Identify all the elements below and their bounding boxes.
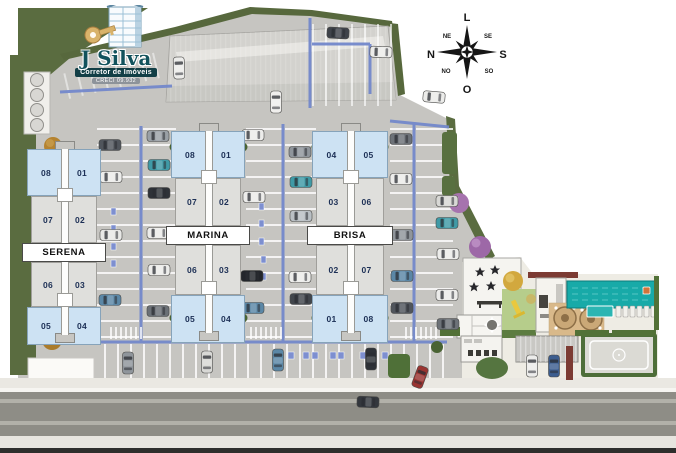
stair-core: [343, 281, 359, 295]
car-icon: [527, 355, 538, 377]
utility-tanks: [24, 72, 50, 134]
compass-label-east: L: [464, 12, 471, 24]
car-icon: [437, 319, 459, 330]
unit-number: 05: [172, 314, 208, 324]
stair-core: [343, 170, 359, 184]
car-icon: [123, 352, 134, 374]
stair-core: [57, 188, 73, 202]
unit-number: 04: [208, 314, 244, 324]
car-icon: [357, 396, 379, 408]
car-icon: [436, 196, 458, 207]
building-brisa: 04 05 03 06 BRISA 02 07 01 08: [316, 131, 384, 333]
car-icon: [147, 131, 169, 142]
car-icon: [273, 349, 284, 371]
car-icon: [148, 160, 170, 171]
unit-number: 06: [32, 280, 64, 290]
car-icon: [99, 140, 121, 151]
stair-core: [201, 170, 217, 184]
car-icon: [436, 218, 458, 229]
brand-name: J Silva: [56, 49, 176, 68]
compass-label-south: S: [499, 49, 506, 61]
stair-core: [201, 281, 217, 295]
car-icon: [390, 134, 412, 145]
unit-number: 03: [208, 265, 240, 275]
car-icon: [243, 192, 265, 203]
car-icon: [100, 172, 122, 183]
unit-number: 08: [350, 314, 387, 324]
unit-number: 08: [28, 168, 64, 178]
unit-number: 03: [64, 280, 96, 290]
compass-label-west: O: [463, 84, 472, 96]
car-icon: [148, 188, 170, 199]
site-plan-page: L S O N NE SE NO SO 08 01 07 02 SERENA 0…: [0, 0, 676, 453]
car-icon: [366, 348, 377, 370]
car-icon: [290, 211, 312, 222]
car-icon: [99, 295, 121, 306]
compass-label-north: N: [427, 49, 435, 61]
car-icon: [242, 303, 264, 314]
car-icon: [423, 91, 446, 104]
brand-tagline: Corretor de Imóveis: [75, 68, 157, 77]
unit-number: 04: [64, 321, 100, 331]
unit-number: 07: [176, 197, 208, 207]
car-icon: [327, 27, 350, 39]
unit-number: 02: [208, 197, 240, 207]
car-icon: [391, 271, 413, 282]
brand-logo-art: [79, 5, 153, 51]
compass-label-se: SE: [484, 34, 492, 40]
building-name-label: MARINA: [166, 226, 250, 245]
unit-number: 06: [176, 265, 208, 275]
compass-rose: L S O N NE SE NO SO: [427, 12, 507, 96]
unit-number: 07: [350, 265, 383, 275]
building-name-label: BRISA: [307, 226, 393, 245]
building-serena: 08 01 07 02 SERENA 06 03 05 04: [31, 149, 97, 335]
brand-logo: J Silva Corretor de Imóveis CRECI 09.932: [56, 5, 176, 84]
unit-number: 05: [350, 150, 387, 160]
car-icon: [202, 351, 213, 373]
car-icon: [242, 130, 264, 141]
brand-registration: CRECI 09.932: [92, 78, 140, 84]
car-icon: [290, 294, 312, 305]
car-icon: [390, 174, 412, 185]
car-icon: [147, 306, 169, 317]
unit-number: 06: [350, 197, 383, 207]
car-icon: [391, 303, 413, 314]
car-icon: [549, 355, 560, 377]
unit-number: 01: [64, 168, 100, 178]
car-icon: [271, 91, 282, 113]
car-icon: [437, 249, 459, 260]
unit-number: 01: [313, 314, 350, 324]
unit-number: 02: [317, 265, 350, 275]
building-name-label: SERENA: [22, 243, 106, 262]
stair-core: [57, 293, 73, 307]
car-icon: [436, 290, 458, 301]
feature-wall: [566, 346, 573, 380]
unit-number: 05: [28, 321, 64, 331]
unit-number: 08: [172, 150, 208, 160]
car-icon: [290, 177, 312, 188]
building-marina: 08 01 07 02 MARINA 06 03 05 04: [175, 131, 241, 333]
car-icon: [241, 271, 263, 282]
car-icon: [391, 230, 413, 241]
compass-label-no: NO: [442, 69, 451, 75]
unit-number: 07: [32, 215, 64, 225]
compass-label-ne: NE: [443, 34, 451, 40]
car-icon: [289, 272, 311, 283]
unit-number: 02: [64, 215, 96, 225]
car-icon: [100, 230, 122, 241]
clubhouse: [457, 315, 502, 362]
car-icon: [370, 46, 392, 58]
unit-number: 04: [313, 150, 350, 160]
unit-number: 01: [208, 150, 244, 160]
compass-label-so: SO: [485, 69, 494, 75]
sports-court: [581, 333, 657, 377]
car-icon: [148, 265, 170, 276]
car-icon: [289, 147, 311, 158]
unit-number: 03: [317, 197, 350, 207]
